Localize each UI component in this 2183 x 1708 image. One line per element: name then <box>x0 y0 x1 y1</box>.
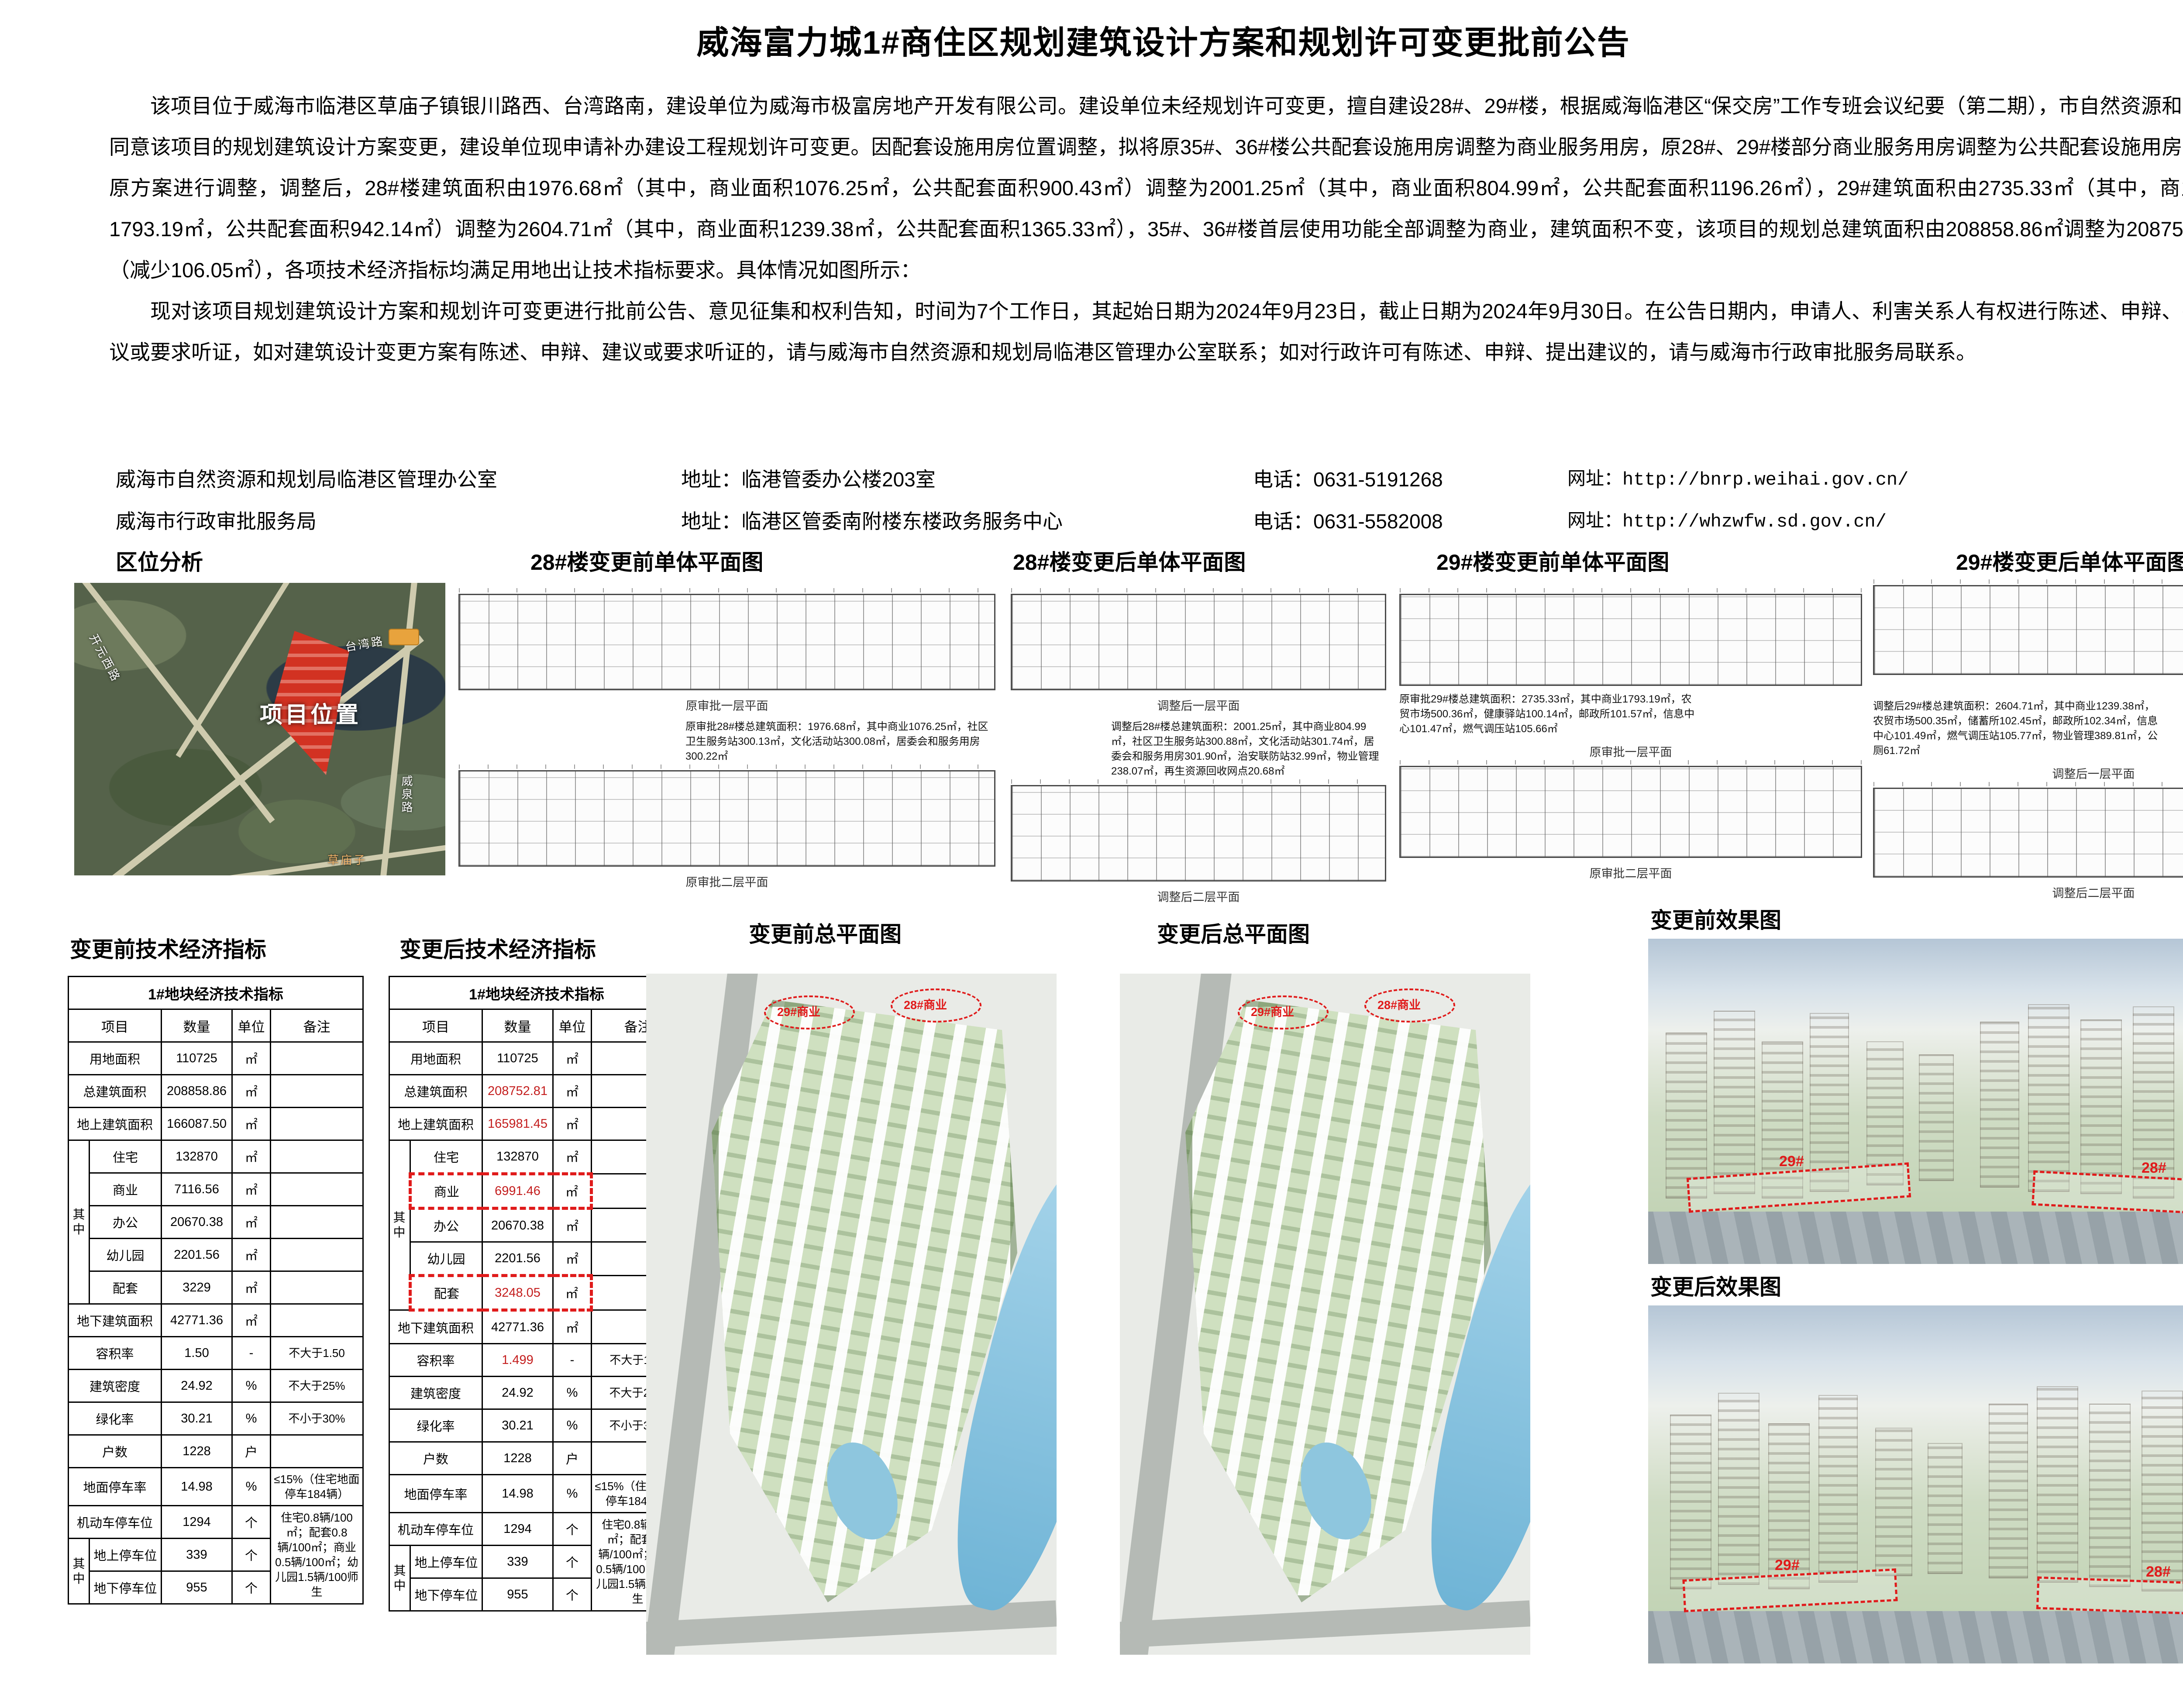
project-location-label: 项目位置 <box>260 696 361 729</box>
plan-level-label: 调整后一层平面 <box>1873 764 2183 782</box>
group-label: 其中 <box>389 1140 410 1310</box>
contact-org: 威海市行政审批服务局 <box>116 506 317 534</box>
tower-graphic <box>2142 1391 2183 1591</box>
table-row: 机动车停车位1294个住宅0.8辆/100㎡；配套0.8辆/100㎡；商业0.5… <box>69 1506 363 1539</box>
heading-render-after: 变更后效果图 <box>1650 1270 1781 1301</box>
table-row: 办公20670.38㎡ <box>389 1209 684 1242</box>
table-row: 总建筑面积208858.86㎡ <box>69 1075 363 1108</box>
tower-graphic <box>1670 1415 1711 1589</box>
table-row-highlighted: 商业6991.46㎡ <box>389 1174 684 1209</box>
contact-row-planning: 威海市自然资源和规划局临港区管理办公室 地址：临港管委办公楼203室 电话：06… <box>116 464 2168 505</box>
plan-corner-label: 首层平面图 <box>1873 681 2183 693</box>
road-line <box>128 835 445 875</box>
tower-graphic <box>2089 1404 2131 1587</box>
table-row: 配套3229㎡ <box>69 1271 363 1304</box>
plan-caption: 调整后29#楼总建筑面积：2604.71㎡，其中商业1239.38㎡，农贸市场5… <box>1873 699 2161 758</box>
table-row: 建筑密度24.92%不大于25% <box>389 1377 684 1409</box>
table-row: 地上建筑面积166087.50㎡ <box>69 1108 363 1140</box>
contact-row-approval: 威海市行政审批服务局 地址：临港区管委南附楼东楼政务服务中心 电话：0631-5… <box>116 506 2168 547</box>
table-row: 绿化率30.21%不小于30% <box>69 1402 363 1435</box>
table-row: 用地面积110725㎡ <box>389 1042 684 1075</box>
annotation-29-commercial: 29#商业 <box>1251 1002 1294 1019</box>
contact-address: 地址：临港管委办公楼203室 <box>681 464 936 492</box>
contact-address: 地址：临港区管委南附楼东楼政务服务中心 <box>681 506 1063 534</box>
heading-table-before: 变更前技术经济指标 <box>70 932 266 964</box>
floor-plan-drawing <box>1873 585 2183 675</box>
plan-level-label: 调整后二层平面 <box>1011 888 1386 905</box>
plan-level-label: 原审批一层平面 <box>1399 743 1862 760</box>
floor-plan-drawing <box>1873 788 2183 878</box>
heading-28-before-plan: 28#楼变更前单体平面图 <box>530 545 763 576</box>
annotation-29-commercial: 29#商业 <box>777 1002 820 1019</box>
route-shield-icon <box>389 629 419 645</box>
plan-caption: 调整后28#楼总建筑面积：2001.25㎡，其中商业804.99㎡，社区卫生服务… <box>1111 720 1382 779</box>
tower-graphic <box>1989 1404 2028 1578</box>
siteplan-after-image: 29#商业 28#商业 <box>1120 974 1530 1655</box>
tower-graphic <box>1718 1393 1759 1585</box>
floor-plan-drawing <box>1399 594 1862 686</box>
table-row: 地面停车率14.98%≤15%（住宅地面停车184辆） <box>69 1468 363 1506</box>
group-label: 其中 <box>69 1140 90 1304</box>
highlight-label-29: 29# <box>1775 1557 1800 1574</box>
floorplan-29-before: 原审批29#楼总建筑面积：2735.33㎡，其中商业1793.19㎡，农贸市场5… <box>1399 594 1862 881</box>
table-row-highlighted: 配套3248.05㎡ <box>389 1276 684 1310</box>
tower-graphic <box>1919 1054 1954 1181</box>
tower-graphic <box>1875 1428 1912 1576</box>
floor-plan-drawing <box>458 594 995 690</box>
table-row: 地下建筑面积42771.36㎡ <box>69 1304 363 1337</box>
annotation-28-commercial: 28#商业 <box>1377 995 1421 1012</box>
table-row: 绿化率30.21%不小于30% <box>389 1409 684 1442</box>
heading-render-before: 变更前效果图 <box>1650 903 1781 934</box>
contact-org: 威海市自然资源和规划局临港区管理办公室 <box>116 464 497 492</box>
table-row: 容积率1.50-不大于1.50 <box>69 1337 363 1370</box>
floor-plan-drawing <box>1011 785 1386 882</box>
table-row: 用地面积110725㎡ <box>69 1042 363 1075</box>
table-row: 总建筑面积208752.81㎡ <box>389 1075 684 1108</box>
plan-level-label: 原审批二层平面 <box>1399 864 1862 881</box>
highlight-box-29 <box>1682 1568 1897 1612</box>
location-satellite-map: 项目位置 台湾路 开元西路 威泉路 草庙子 <box>74 583 445 875</box>
table-row: 办公20670.38㎡ <box>69 1206 363 1239</box>
plan-level-label: 调整后一层平面 <box>1011 696 1386 713</box>
table-title-row: 1#地块经济技术指标 <box>389 977 684 1009</box>
heading-table-after: 变更后技术经济指标 <box>399 932 596 964</box>
road-line <box>378 583 419 875</box>
table-title-row: 1#地块经济技术指标 <box>69 977 363 1009</box>
table-row: 户数1228户 <box>389 1442 684 1475</box>
road-line <box>83 635 424 875</box>
table-row: 地面停车率14.98%≤15%（住宅地面停车184辆） <box>389 1475 684 1513</box>
highlight-label-28: 28# <box>2142 1160 2166 1177</box>
siteplan-before-image: 29#商业 28#商业 <box>646 974 1057 1655</box>
floor-plan-drawing <box>1011 594 1386 690</box>
tower-graphic <box>2080 1019 2122 1194</box>
plan-caption: 原审批28#楼总建筑面积：1976.68㎡，其中商业1076.25㎡，社区卫生服… <box>685 720 991 764</box>
table-row: 地下建筑面积42771.36㎡ <box>389 1310 684 1344</box>
plan-level-label: 调整后二层平面 <box>1873 884 2183 901</box>
table-row: 地上建筑面积165981.45㎡ <box>389 1108 684 1140</box>
group-label: 其中 <box>389 1546 410 1611</box>
heading-28-after-plan: 28#楼变更后单体平面图 <box>1013 545 1246 576</box>
plan-caption: 原审批29#楼总建筑面积：2735.33㎡，其中商业1793.19㎡，农贸市场5… <box>1399 692 1696 737</box>
highlight-box-28 <box>2031 1171 2183 1218</box>
heading-29-after-plan: 29#楼变更后单体平面图 <box>1956 545 2183 576</box>
render-after-image: 29# 28# <box>1648 1305 2183 1663</box>
tower-graphic <box>2028 1004 2069 1192</box>
floor-plan-drawing <box>1399 766 1862 858</box>
plan-level-label: 原审批一层平面 <box>458 696 995 713</box>
tower-graphic <box>1980 1022 2019 1188</box>
heading-siteplan-before: 变更前总平面图 <box>749 917 902 948</box>
plan-level-label: 原审批二层平面 <box>458 873 995 890</box>
table-row: 机动车停车位1294个住宅0.8辆/100㎡；配套0.8辆/100㎡；商业0.5… <box>389 1513 684 1546</box>
floor-plan-drawing <box>458 770 995 867</box>
table-row: 商业7116.56㎡ <box>69 1173 363 1206</box>
floorplan-28-before: 原审批一层平面 原审批28#楼总建筑面积：1976.68㎡，其中商业1076.2… <box>458 594 995 890</box>
tower-graphic <box>1666 1033 1707 1198</box>
tower-graphic <box>1818 1395 1858 1583</box>
table-row: 户数1228户 <box>69 1435 363 1468</box>
table-header-row: 项目 数量 单位 备注 <box>69 1009 363 1042</box>
tower-graphic <box>1810 1013 1849 1192</box>
tower-graphic <box>1928 1443 1963 1574</box>
notice-paragraph-1: 该项目位于威海市临港区草庙子镇银川路西、台湾路南，建设单位为威海市极富房地产开发… <box>109 86 2183 291</box>
render-before-image: 29# 28# <box>1648 939 2183 1264</box>
page-title: 威海富力城1#商住区规划建筑设计方案和规划许可变更批前公告 <box>0 17 2183 63</box>
highlight-label-29: 29# <box>1779 1153 1804 1170</box>
contact-phone: 电话：0631-5582008 <box>1253 506 1443 534</box>
contact-phone: 电话：0631-5191268 <box>1253 464 1443 492</box>
table-row: 其中住宅132870㎡ <box>69 1140 363 1173</box>
table-title: 1#地块经济技术指标 <box>69 977 363 1009</box>
road-label-weiquan: 威泉路 <box>399 775 415 814</box>
table-title: 1#地块经济技术指标 <box>389 977 684 1009</box>
table-row: 其中住宅132870㎡ <box>389 1140 684 1174</box>
heading-location-analysis: 区位分析 <box>116 545 203 576</box>
notice-body: 该项目位于威海市临港区草庙子镇银川路西、台湾路南，建设单位为威海市极富房地产开发… <box>109 86 2183 373</box>
contact-website: 网址：http://whzwfw.sd.gov.cn/ <box>1567 506 1887 532</box>
road-line <box>74 583 275 823</box>
road-label-kaiyuanxi: 开元西路 <box>86 631 125 685</box>
group-label: 其中 <box>69 1539 90 1604</box>
heading-siteplan-after: 变更后总平面图 <box>1157 917 1310 948</box>
render-ground <box>1648 1611 2183 1663</box>
highlight-label-28: 28# <box>2146 1563 2171 1581</box>
annotation-28-commercial: 28#商业 <box>904 995 947 1012</box>
table-row: 幼儿园2201.56㎡ <box>389 1242 684 1276</box>
indicator-table-before: 1#地块经济技术指标 项目 数量 单位 备注 用地面积110725㎡ 总建筑面积… <box>68 976 362 1605</box>
heading-29-before-plan: 29#楼变更前单体平面图 <box>1436 545 1669 576</box>
place-label-caomiaozi: 草庙子 <box>327 851 367 868</box>
road-label-taiwan: 台湾路 <box>344 632 385 654</box>
table-row: 容积率1.499-不大于1.50 <box>389 1344 684 1377</box>
tower-graphic <box>2037 1386 2078 1583</box>
floorplan-28-after: 调整后一层平面 调整后28#楼总建筑面积：2001.25㎡，其中商业804.99… <box>1011 594 1386 905</box>
table-row: 建筑密度24.92%不大于25% <box>69 1370 363 1402</box>
indicator-table-after: 1#地块经济技术指标 项目 数量 单位 备注 用地面积110725㎡ 总建筑面积… <box>389 976 683 1612</box>
render-ground <box>1648 1212 2183 1264</box>
table-header-row: 项目 数量 单位 备注 <box>389 1009 684 1042</box>
floorplan-29-after: 首层平面图 调整后29#楼总建筑面积：2604.71㎡，其中商业1239.38㎡… <box>1873 585 2183 901</box>
tower-graphic <box>1714 1011 1755 1194</box>
contact-website: 网址：http://bnrp.weihai.gov.cn/ <box>1567 464 1908 490</box>
notice-paragraph-2: 现对该项目规划建筑设计方案和规划许可变更进行批前公告、意见征集和权利告知，时间为… <box>109 291 2183 373</box>
table-row: 幼儿园2201.56㎡ <box>69 1239 363 1271</box>
